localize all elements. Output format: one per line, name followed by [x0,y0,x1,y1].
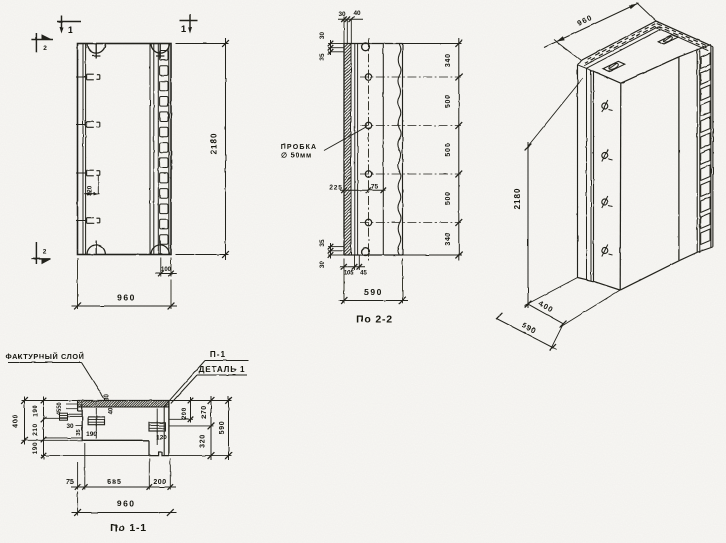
svg-text:40: 40 [109,407,115,414]
svg-text:1: 1 [68,25,74,36]
svg-text:ПРОБКА: ПРОБКА [281,144,318,151]
svg-text:190: 190 [32,404,39,416]
svg-text:1: 1 [181,24,187,35]
svg-text:340: 340 [445,232,452,246]
svg-text:400: 400 [13,414,20,428]
svg-text:75: 75 [371,184,379,191]
svg-text:500: 500 [445,191,452,205]
svg-text:30: 30 [338,11,346,18]
svg-text:40: 40 [353,10,361,17]
svg-text:190: 190 [86,431,97,438]
svg-text:35: 35 [319,53,326,61]
svg-text:45: 45 [57,409,63,415]
svg-text:105: 105 [344,271,355,277]
svg-text:200: 200 [181,407,188,420]
svg-text:270: 270 [201,405,208,419]
svg-text:50: 50 [57,402,63,408]
svg-text:200: 200 [153,479,166,486]
svg-text:30: 30 [105,394,111,401]
svg-text:685: 685 [107,479,122,486]
svg-text:30: 30 [319,32,326,40]
svg-text:30: 30 [319,261,326,269]
svg-text:П-1: П-1 [210,350,226,359]
svg-text:75: 75 [66,479,74,486]
svg-text:30: 30 [66,423,74,430]
svg-text:210: 210 [32,423,39,435]
svg-text:225: 225 [329,185,342,192]
svg-text:590: 590 [364,287,383,297]
svg-text:35: 35 [76,429,82,436]
svg-text:100: 100 [161,267,172,273]
svg-text:ФАКТУРНЫЙ СЛОЙ: ФАКТУРНЫЙ СЛОЙ [5,352,84,361]
svg-text:45: 45 [360,271,367,277]
svg-text:2180: 2180 [210,133,219,155]
svg-text:340: 340 [445,53,452,67]
svg-text:2: 2 [43,249,47,256]
svg-text:120: 120 [87,185,94,196]
svg-text:320: 320 [200,434,207,448]
svg-text:960: 960 [117,499,136,509]
svg-text:∅ 50мм: ∅ 50мм [281,152,312,160]
svg-text:960: 960 [117,293,136,303]
svg-text:500: 500 [445,143,452,157]
svg-text:35: 35 [319,239,326,247]
svg-text:190: 190 [32,442,39,454]
svg-text:120: 120 [156,435,167,442]
svg-text:500: 500 [445,94,452,108]
svg-text:2: 2 [43,45,47,52]
svg-text:590: 590 [219,421,226,435]
svg-text:ДЕТАЛЬ 1: ДЕТАЛЬ 1 [199,365,246,374]
svg-text:По 2-2: По 2-2 [356,314,393,326]
svg-text:2180: 2180 [513,188,522,210]
svg-text:По 1-1: По 1-1 [110,522,147,534]
